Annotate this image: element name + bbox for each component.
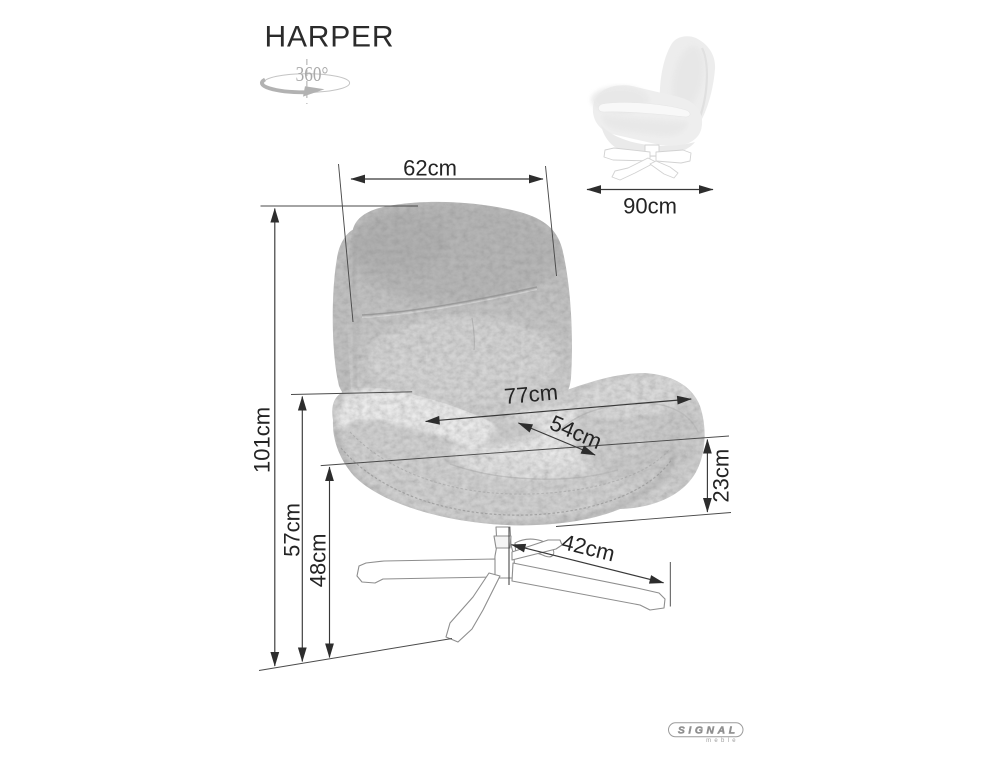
svg-text:360°: 360° — [296, 64, 329, 87]
svg-text:meble: meble — [706, 738, 739, 744]
svg-text:23cm: 23cm — [709, 449, 734, 503]
svg-text:SIGNAL: SIGNAL — [678, 726, 739, 737]
svg-text:57cm: 57cm — [280, 503, 305, 557]
svg-text:48cm: 48cm — [305, 534, 330, 588]
svg-text:77cm: 77cm — [503, 379, 559, 409]
svg-text:HARPER: HARPER — [265, 20, 395, 53]
svg-text:62cm: 62cm — [403, 156, 457, 181]
svg-text:90cm: 90cm — [623, 194, 677, 219]
svg-text:101cm: 101cm — [250, 407, 275, 473]
